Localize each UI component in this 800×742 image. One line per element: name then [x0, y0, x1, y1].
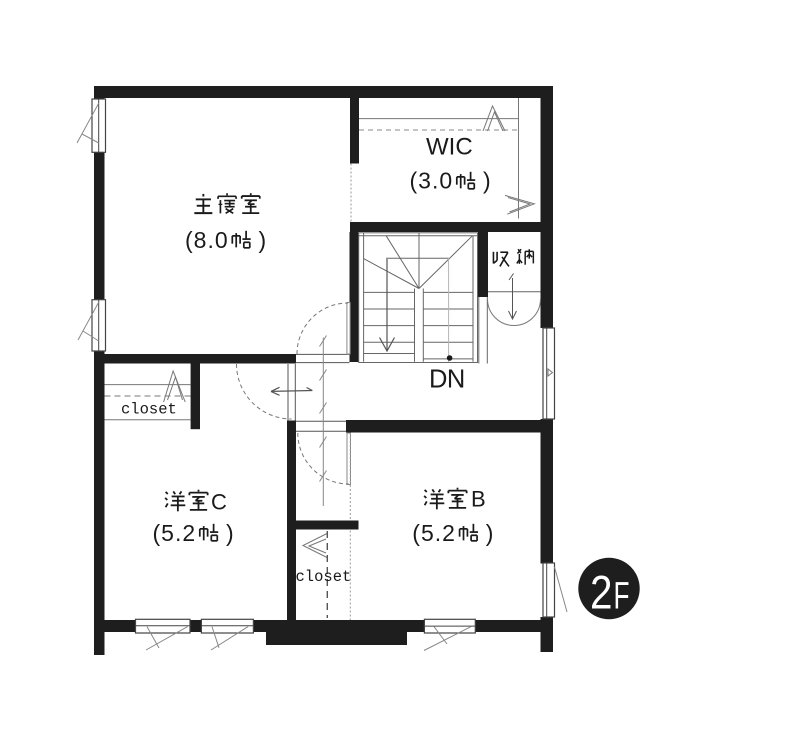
svg-text:(5.2: (5.2: [153, 520, 197, 546]
svg-text:): ): [483, 168, 491, 194]
svg-text:): ): [259, 227, 267, 253]
svg-text:2: 2: [590, 566, 613, 619]
svg-text:WIC: WIC: [426, 134, 473, 161]
svg-text:(5.2: (5.2: [412, 520, 456, 546]
svg-text:DN: DN: [429, 365, 465, 393]
svg-text:closet: closet: [296, 568, 352, 586]
svg-text:): ): [486, 520, 494, 546]
svg-text:closet: closet: [121, 401, 177, 419]
svg-text:(8.0: (8.0: [185, 227, 229, 253]
svg-text:(3.0: (3.0: [410, 168, 454, 194]
svg-text:B: B: [471, 487, 486, 512]
svg-text:): ): [226, 520, 234, 546]
svg-text:C: C: [211, 490, 227, 515]
svg-text:F: F: [614, 576, 630, 618]
